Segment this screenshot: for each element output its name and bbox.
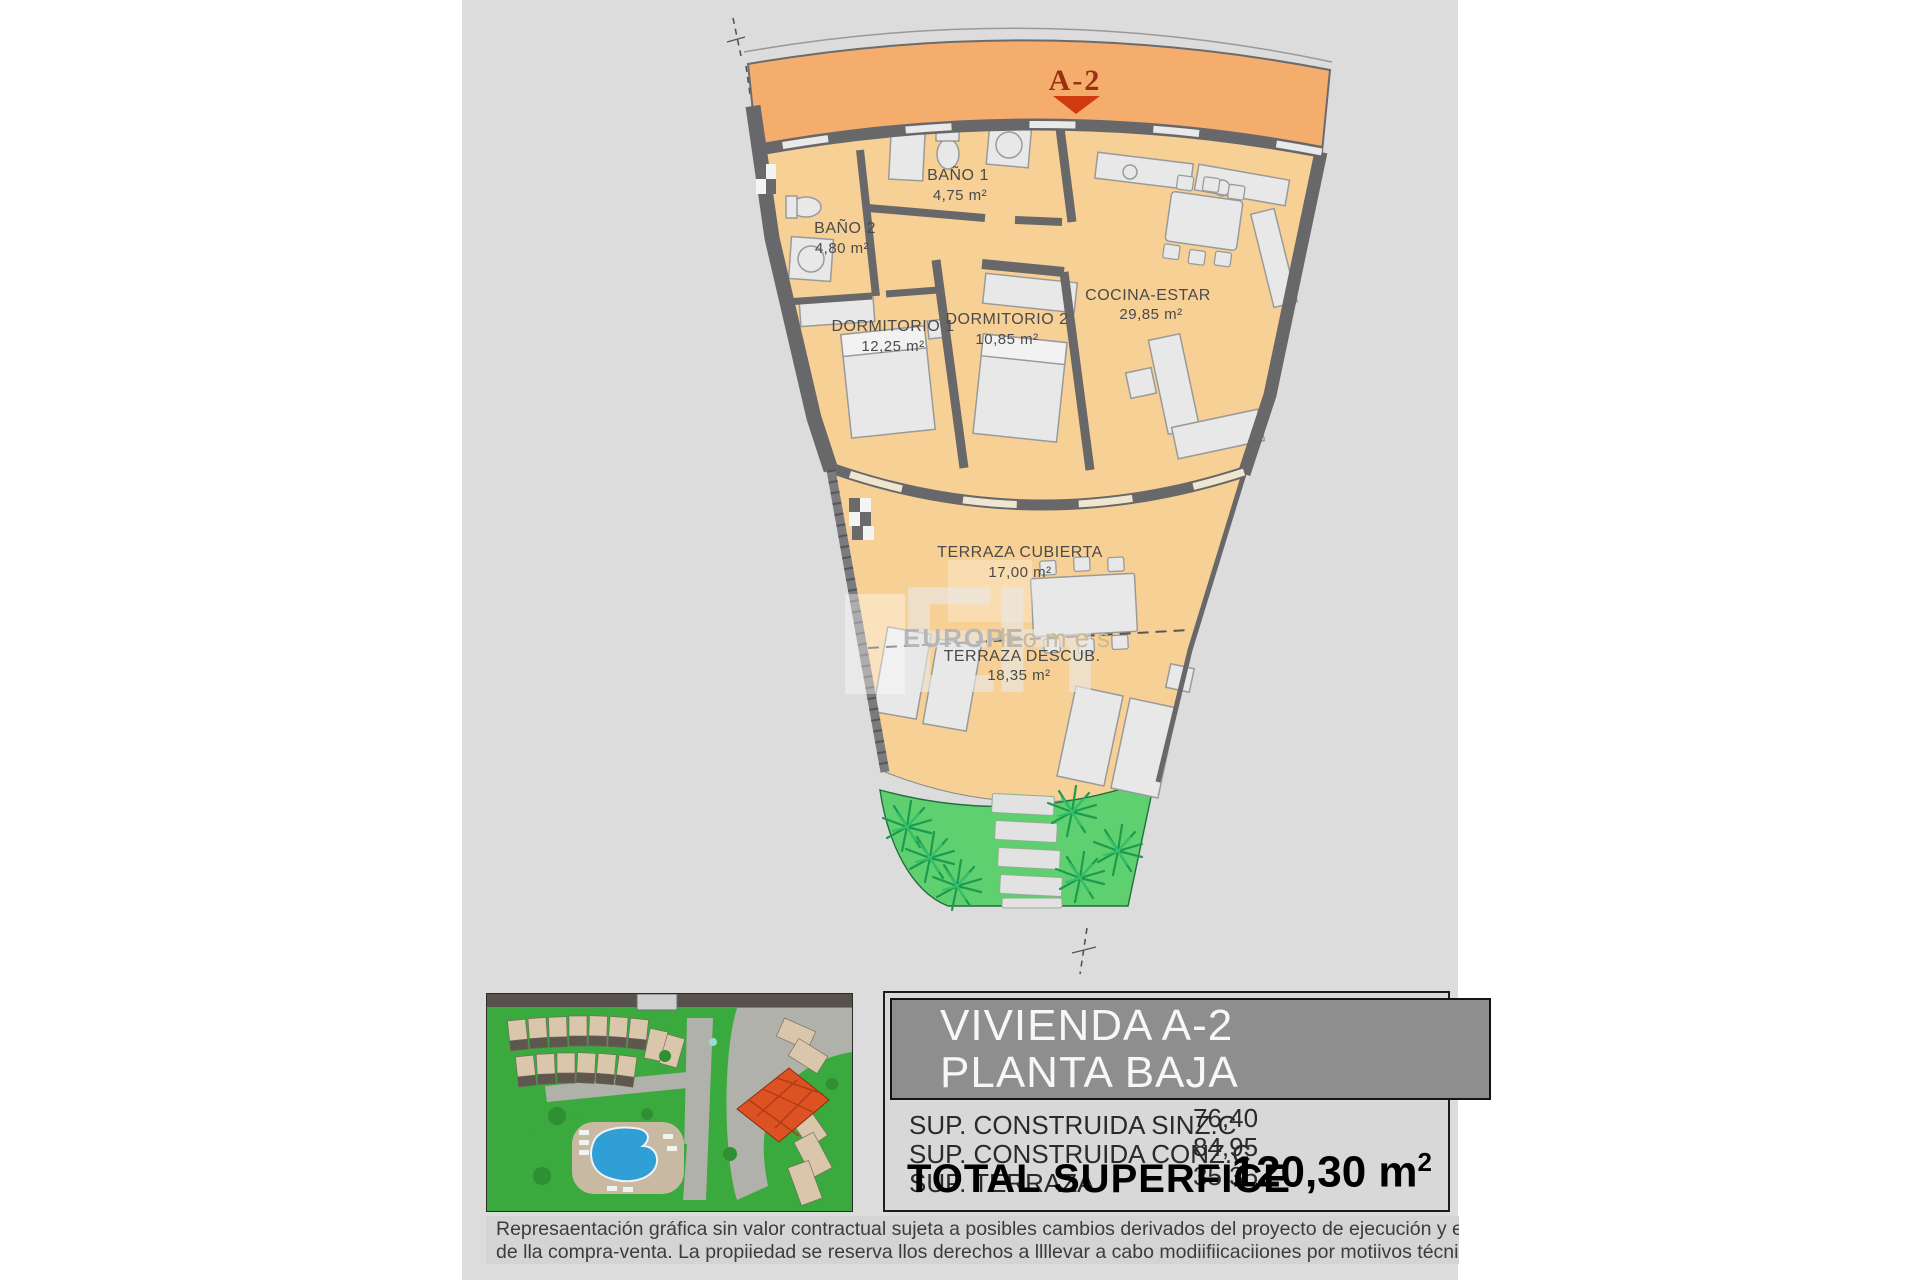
site-plan-render xyxy=(487,994,852,1211)
stepping-stones xyxy=(992,793,1063,908)
room-area: 17,00 m² xyxy=(988,564,1051,581)
unit-title-line1: VIVIENDA A-2 xyxy=(940,1002,1489,1049)
room-area: 4,75 m² xyxy=(933,187,987,204)
room-label: BAÑO 1 xyxy=(927,164,989,184)
surface-row-value: 76,40 xyxy=(1193,1104,1258,1133)
room-area: 10,85 m² xyxy=(975,331,1038,348)
room-area: 18,35 m² xyxy=(987,667,1050,684)
total-surface-value: 120,30 m2 xyxy=(1232,1147,1432,1198)
info-panel-header: VIVIENDA A-2 PLANTA BAJA xyxy=(890,998,1491,1100)
total-surface-superscript: 2 xyxy=(1418,1147,1432,1177)
room-label: COCINA-ESTAR xyxy=(1085,287,1211,304)
site-plan-image xyxy=(486,993,853,1212)
disclaimer: Represaentación gráfica sin valor contra… xyxy=(486,1216,1459,1264)
room-area: 12,25 m² xyxy=(861,338,924,355)
total-surface-number: 120,30 m xyxy=(1232,1148,1418,1197)
page: A-2 xyxy=(0,0,1920,1280)
room-label: DORMITORIO 1 xyxy=(831,318,954,335)
unit-marker-label: A-2 xyxy=(1049,64,1102,97)
room-area: 29,85 m² xyxy=(1119,306,1182,323)
room-label: TERRAZA DESCUB. xyxy=(944,648,1101,665)
disclaimer-line1: Represaentación gráfica sin valor contra… xyxy=(496,1218,1459,1241)
info-panel: VIVIENDA A-2 PLANTA BAJA SUP. CONSTRUIDA… xyxy=(883,991,1450,1212)
room-label: BAÑO 2 xyxy=(814,217,876,237)
room-label: TERRAZA CUBIERTA xyxy=(937,544,1103,561)
disclaimer-line2: de lla compra-venta. La propiiedad se re… xyxy=(496,1241,1459,1264)
unit-title-line2: PLANTA BAJA xyxy=(940,1049,1489,1096)
room-area: 4,80 m² xyxy=(815,240,869,257)
room-label: DORMITORIO 2 xyxy=(945,311,1068,328)
